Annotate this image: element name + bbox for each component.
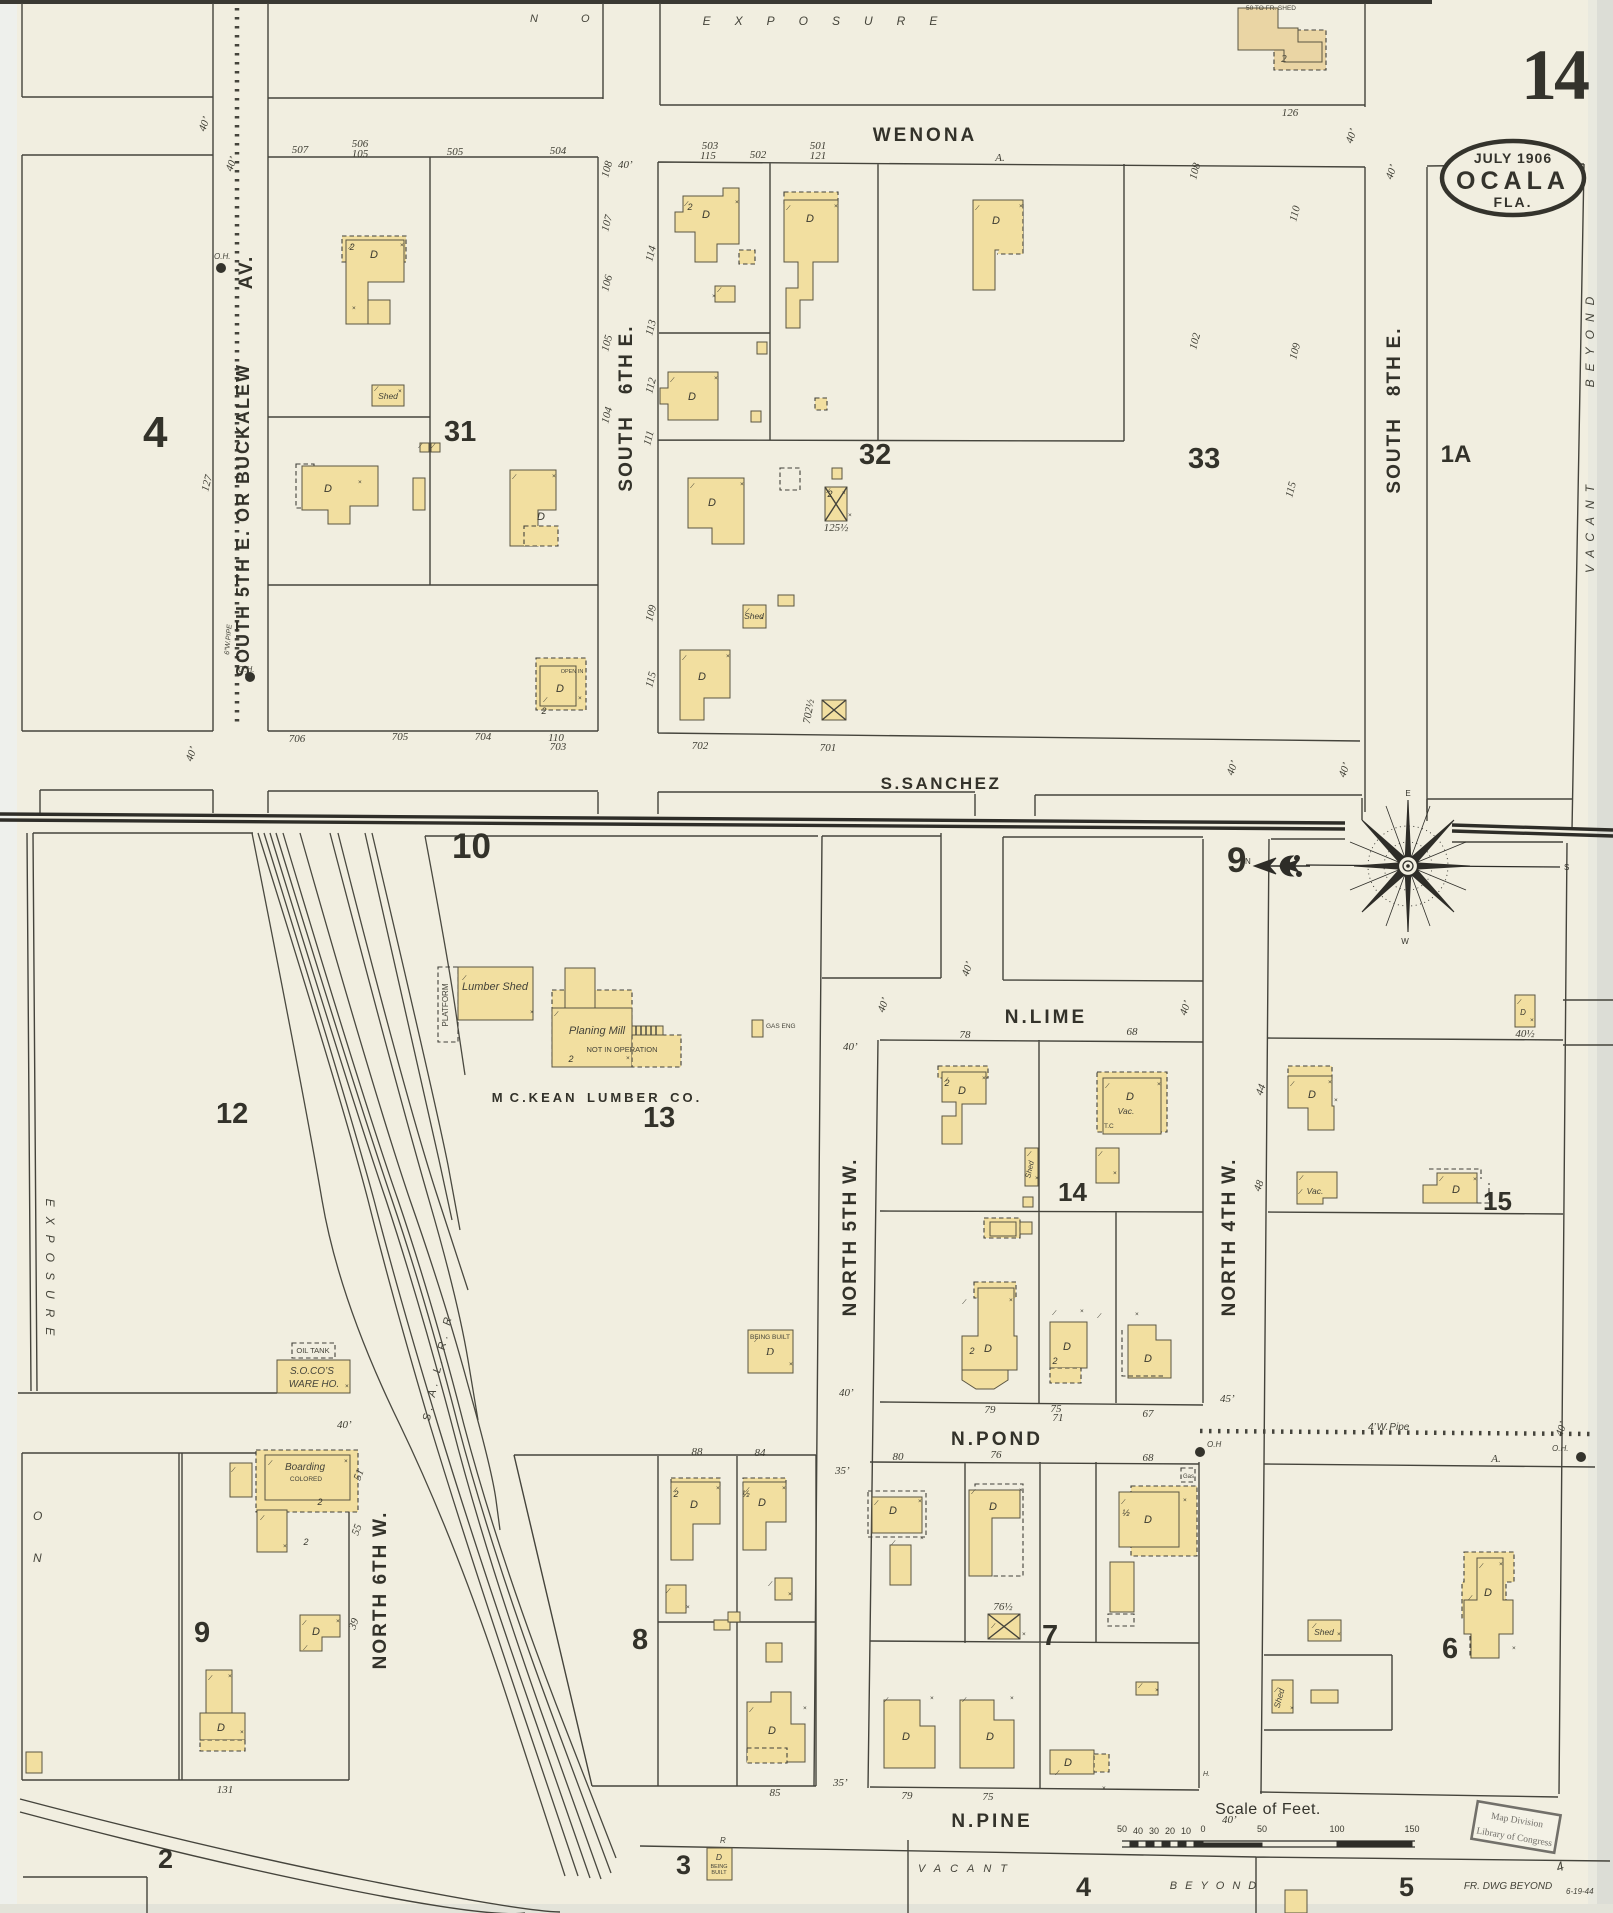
svg-text:D: D xyxy=(989,1501,997,1513)
svg-text:30: 30 xyxy=(1149,1826,1159,1836)
svg-text:×: × xyxy=(788,1591,792,1598)
svg-text:40’: 40’ xyxy=(337,1419,352,1431)
svg-text:O: O xyxy=(581,13,590,25)
svg-text:JULY 1906: JULY 1906 xyxy=(1474,150,1552,166)
svg-text:×: × xyxy=(626,1055,630,1062)
svg-text:12: 12 xyxy=(216,1098,248,1130)
svg-text:E: E xyxy=(1405,789,1410,798)
svg-text:80: 80 xyxy=(893,1451,905,1463)
svg-text:D: D xyxy=(708,497,716,509)
svg-text:×: × xyxy=(336,1618,340,1625)
svg-text:D: D xyxy=(556,683,564,695)
svg-text:½: ½ xyxy=(1122,1508,1130,1518)
svg-text:×: × xyxy=(345,1383,349,1390)
svg-text:×: × xyxy=(1019,1487,1023,1494)
svg-text:3: 3 xyxy=(676,1850,691,1880)
svg-text:×: × xyxy=(352,305,356,312)
svg-text:502: 502 xyxy=(750,149,767,161)
svg-text:D: D xyxy=(1308,1089,1316,1101)
svg-text:71: 71 xyxy=(1053,1412,1064,1424)
svg-text:706: 706 xyxy=(289,733,306,745)
svg-text:×: × xyxy=(760,615,764,622)
svg-text:4: 4 xyxy=(143,408,168,457)
svg-text:N.PINE: N.PINE xyxy=(951,1811,1032,1832)
svg-text:Vac.: Vac. xyxy=(1118,1106,1135,1116)
svg-text:D: D xyxy=(768,1725,776,1737)
svg-text:115: 115 xyxy=(700,150,716,162)
svg-text:S.O.CO’S: S.O.CO’S xyxy=(290,1366,334,1377)
svg-text:2: 2 xyxy=(686,202,692,212)
svg-text:D: D xyxy=(324,483,332,495)
svg-text:126: 126 xyxy=(1282,107,1299,119)
svg-text:31: 31 xyxy=(444,416,476,448)
svg-text:131: 131 xyxy=(217,1784,234,1796)
svg-text:D: D xyxy=(765,1346,774,1358)
svg-text:504: 504 xyxy=(550,145,567,157)
svg-text:NOT IN OPERATION: NOT IN OPERATION xyxy=(587,1045,658,1054)
svg-text:×: × xyxy=(1080,1308,1084,1315)
svg-text:D: D xyxy=(902,1731,910,1743)
svg-text:×: × xyxy=(530,1009,534,1016)
svg-text:75: 75 xyxy=(983,1791,995,1803)
svg-text:M C.KEAN LUMBER CO.: M C.KEAN LUMBER CO. xyxy=(492,1090,702,1105)
svg-text:9: 9 xyxy=(194,1617,210,1649)
svg-text:100: 100 xyxy=(1329,1824,1344,1834)
svg-text:R: R xyxy=(720,1836,726,1845)
svg-text:×: × xyxy=(1135,1311,1139,1318)
svg-text:D: D xyxy=(889,1505,897,1517)
svg-text:14: 14 xyxy=(1521,35,1589,115)
svg-text:×: × xyxy=(552,473,556,480)
svg-text:D: D xyxy=(986,1731,994,1743)
svg-text:Scale of Feet.: Scale of Feet. xyxy=(1215,1801,1321,1818)
svg-text:Gas: Gas xyxy=(1183,1474,1194,1480)
svg-text:×: × xyxy=(714,375,718,382)
svg-text:85: 85 xyxy=(770,1787,782,1799)
svg-text:2: 2 xyxy=(316,1497,322,1507)
svg-text:×: × xyxy=(1512,1645,1516,1652)
svg-text:10: 10 xyxy=(1181,1826,1191,1836)
svg-text:×: × xyxy=(930,1695,934,1702)
svg-text:EXPOSURE: EXPOSURE xyxy=(43,1199,57,1346)
svg-text:×: × xyxy=(398,388,402,395)
svg-text:2: 2 xyxy=(1281,53,1287,65)
svg-text:SOUTH 6TH E.: SOUTH 6TH E. xyxy=(616,324,637,491)
svg-text:D: D xyxy=(698,671,706,683)
svg-text:5: 5 xyxy=(1399,1872,1414,1902)
svg-text:D: D xyxy=(1484,1587,1492,1599)
svg-text:703: 703 xyxy=(550,741,567,753)
svg-text:0: 0 xyxy=(1200,1824,1205,1834)
svg-text:×: × xyxy=(920,1535,924,1542)
svg-text:NORTH 5TH W.: NORTH 5TH W. xyxy=(840,1158,861,1317)
svg-text:×: × xyxy=(1010,1695,1014,1702)
svg-text:EXPOSURE: EXPOSURE xyxy=(703,14,962,28)
svg-text:PLATFORM: PLATFORM xyxy=(441,983,450,1026)
svg-text:6: 6 xyxy=(1442,1633,1458,1665)
svg-text:×: × xyxy=(1183,1497,1187,1504)
svg-text:N: N xyxy=(33,1551,42,1565)
svg-text:O: O xyxy=(33,1509,42,1523)
svg-text:N.POND: N.POND xyxy=(951,1429,1043,1450)
svg-text:Lumber Shed: Lumber Shed xyxy=(462,981,529,993)
svg-text:×: × xyxy=(726,653,730,660)
svg-text:125½: 125½ xyxy=(824,522,849,534)
svg-text:×: × xyxy=(1499,1561,1503,1568)
svg-text:D: D xyxy=(537,511,545,523)
svg-text:OPEN IN: OPEN IN xyxy=(561,669,584,675)
svg-text:H.: H. xyxy=(1203,1771,1210,1778)
svg-text:D: D xyxy=(1144,1353,1152,1365)
svg-text:705: 705 xyxy=(392,731,409,743)
svg-text:76½: 76½ xyxy=(993,1601,1012,1613)
svg-text:84: 84 xyxy=(755,1447,767,1459)
svg-text:40½: 40½ xyxy=(1515,1028,1534,1040)
svg-text:D: D xyxy=(1126,1091,1134,1103)
svg-text:D: D xyxy=(716,1852,722,1862)
svg-text:×: × xyxy=(1022,1631,1026,1638)
svg-text:×: × xyxy=(1157,1081,1161,1088)
svg-text:2: 2 xyxy=(1051,1356,1057,1366)
svg-text:40’: 40’ xyxy=(618,159,633,171)
svg-text:×: × xyxy=(578,695,582,702)
svg-text:10: 10 xyxy=(452,827,491,866)
svg-text:D: D xyxy=(1063,1341,1071,1353)
svg-text:D: D xyxy=(958,1085,966,1097)
svg-text:W: W xyxy=(1401,937,1409,946)
svg-text:Shed: Shed xyxy=(378,391,398,401)
svg-text:35’: 35’ xyxy=(834,1465,850,1477)
svg-text:×: × xyxy=(789,1361,793,1368)
svg-text:SOUTH 5TH E. OR BUCKALEW: SOUTH 5TH E. OR BUCKALEW xyxy=(233,363,253,677)
svg-text:D: D xyxy=(758,1497,766,1509)
svg-text:O.H.: O.H. xyxy=(214,252,230,261)
svg-text:9: 9 xyxy=(1227,841,1246,880)
svg-text:WENONA: WENONA xyxy=(873,125,978,146)
svg-text:×: × xyxy=(1334,1097,1338,1104)
svg-text:×: × xyxy=(240,1729,244,1736)
svg-text:COLORED: COLORED xyxy=(290,1476,322,1483)
svg-text:702: 702 xyxy=(692,740,709,752)
svg-text:Shed: Shed xyxy=(1314,1627,1334,1637)
svg-text:Vac.: Vac. xyxy=(1307,1186,1324,1196)
svg-text:88: 88 xyxy=(692,1446,704,1458)
svg-text:×: × xyxy=(782,1485,786,1492)
svg-text:D: D xyxy=(1520,1008,1526,1017)
svg-text:×: × xyxy=(735,199,739,206)
svg-text:WARE HO.: WARE HO. xyxy=(289,1379,339,1390)
svg-text:14: 14 xyxy=(1058,1177,1087,1207)
svg-text:S.SANCHEZ: S.SANCHEZ xyxy=(881,774,1002,793)
svg-text:40: 40 xyxy=(1133,1826,1143,1836)
svg-text:D: D xyxy=(1064,1757,1072,1769)
svg-text:BUILT: BUILT xyxy=(711,1870,727,1876)
svg-text:OIL TANK: OIL TANK xyxy=(296,1346,329,1355)
svg-text:Boarding: Boarding xyxy=(285,1462,325,1473)
svg-text:150: 150 xyxy=(1404,1824,1419,1834)
svg-text:N: N xyxy=(1245,857,1251,866)
svg-text:S: S xyxy=(1564,863,1569,872)
svg-text:13: 13 xyxy=(643,1102,675,1134)
svg-text:15: 15 xyxy=(1483,1186,1512,1216)
svg-text:68: 68 xyxy=(1143,1452,1155,1464)
svg-text:×: × xyxy=(1328,1079,1332,1086)
svg-text:×: × xyxy=(1113,1170,1117,1177)
svg-text:D: D xyxy=(370,249,378,261)
svg-text:×: × xyxy=(1035,1175,1039,1182)
svg-text:×: × xyxy=(1102,1785,1106,1792)
svg-text:T.C: T.C xyxy=(1104,1123,1114,1130)
svg-text:×: × xyxy=(400,242,404,249)
svg-text:A.: A. xyxy=(994,152,1004,164)
svg-text:505: 505 xyxy=(447,146,464,158)
svg-text:D: D xyxy=(992,215,1000,227)
svg-text:20: 20 xyxy=(1165,1826,1175,1836)
svg-text:×: × xyxy=(228,1673,232,1680)
svg-text:VACANT: VACANT xyxy=(1583,477,1597,573)
svg-text:O.H: O.H xyxy=(1207,1440,1221,1449)
svg-text:×: × xyxy=(918,1498,922,1505)
svg-text:D: D xyxy=(690,1499,698,1511)
svg-text:40’: 40’ xyxy=(839,1387,854,1399)
svg-text:×: × xyxy=(1530,1017,1534,1024)
svg-text:2: 2 xyxy=(302,1537,308,1547)
svg-text:×: × xyxy=(740,481,744,488)
svg-text:×: × xyxy=(982,1075,986,1082)
svg-text:2: 2 xyxy=(567,1054,573,1064)
svg-text:×: × xyxy=(1337,1631,1341,1638)
svg-text:×: × xyxy=(283,1543,287,1550)
svg-text:×: × xyxy=(1009,1297,1013,1304)
svg-text:N.LIME: N.LIME xyxy=(1005,1007,1087,1028)
svg-text:D: D xyxy=(1144,1514,1152,1526)
svg-text:78: 78 xyxy=(960,1029,972,1041)
svg-text:105: 105 xyxy=(352,148,369,160)
svg-text:×: × xyxy=(712,293,716,300)
svg-text:45’: 45’ xyxy=(1220,1393,1235,1405)
svg-text:BEYOND: BEYOND xyxy=(1583,289,1597,388)
svg-text:GAS ENG: GAS ENG xyxy=(766,1023,796,1030)
svg-text:76: 76 xyxy=(991,1449,1003,1461)
svg-text:VACANT: VACANT xyxy=(918,1863,1016,1875)
svg-text:×: × xyxy=(716,1485,720,1492)
svg-text:4: 4 xyxy=(1076,1872,1091,1902)
svg-text:2: 2 xyxy=(968,1346,974,1356)
svg-text:D: D xyxy=(806,213,814,225)
svg-text:×: × xyxy=(848,512,852,519)
svg-text:2: 2 xyxy=(540,706,546,716)
svg-text:FLA.: FLA. xyxy=(1493,194,1532,210)
svg-text:D: D xyxy=(702,209,710,221)
svg-text:704: 704 xyxy=(475,731,492,743)
svg-text:FR. DWG BEYOND: FR. DWG BEYOND xyxy=(1464,1881,1552,1892)
svg-text:8: 8 xyxy=(632,1624,648,1656)
svg-text:N: N xyxy=(530,13,538,25)
svg-text:4’ W. Pipe: 4’ W. Pipe xyxy=(1368,1422,1410,1433)
svg-text:6-19-44: 6-19-44 xyxy=(1566,1887,1594,1896)
svg-text:121: 121 xyxy=(810,150,827,162)
svg-text:AV.: AV. xyxy=(236,255,257,290)
svg-text:A.: A. xyxy=(1490,1453,1500,1465)
svg-text:7: 7 xyxy=(1042,1620,1058,1652)
svg-text:40’: 40’ xyxy=(843,1041,858,1053)
svg-text:D: D xyxy=(312,1626,320,1638)
svg-text:×: × xyxy=(803,1705,807,1712)
svg-text:NORTH 4TH W.: NORTH 4TH W. xyxy=(1219,1158,1240,1317)
svg-text:35’: 35’ xyxy=(832,1777,848,1789)
svg-text:1A: 1A xyxy=(1441,441,1472,468)
svg-text:32: 32 xyxy=(859,439,891,471)
svg-text:D: D xyxy=(1452,1184,1460,1196)
svg-text:OCALA: OCALA xyxy=(1456,167,1570,195)
svg-text:507: 507 xyxy=(292,144,309,156)
svg-text:O.H.: O.H. xyxy=(1552,1444,1568,1453)
svg-text:68: 68 xyxy=(1127,1026,1139,1038)
svg-text:D: D xyxy=(984,1343,992,1355)
svg-text:×: × xyxy=(1019,203,1023,210)
svg-text:79: 79 xyxy=(985,1404,997,1416)
svg-text:67: 67 xyxy=(1143,1408,1155,1420)
svg-text:×: × xyxy=(1473,1176,1477,1183)
svg-text:D: D xyxy=(688,391,696,403)
svg-text:×: × xyxy=(344,1458,348,1465)
svg-text:×: × xyxy=(842,490,846,497)
svg-text:50 TO FR. SHED: 50 TO FR. SHED xyxy=(1246,5,1296,12)
svg-text:50: 50 xyxy=(1117,1824,1127,1834)
svg-text:SOUTH 8TH E.: SOUTH 8TH E. xyxy=(1384,326,1405,493)
svg-text:×: × xyxy=(1155,1687,1159,1694)
svg-text:D: D xyxy=(217,1722,225,1734)
svg-text:NORTH 6TH W.: NORTH 6TH W. xyxy=(370,1511,391,1670)
svg-text:×: × xyxy=(358,479,362,486)
svg-text:×: × xyxy=(834,203,838,210)
svg-text:×: × xyxy=(1290,1705,1294,1712)
svg-text:Planing Mill: Planing Mill xyxy=(569,1025,626,1037)
svg-text:BEYOND: BEYOND xyxy=(1170,1880,1264,1892)
svg-text:50: 50 xyxy=(1257,1824,1267,1834)
svg-text:×: × xyxy=(686,1604,690,1611)
svg-text:701: 701 xyxy=(820,742,837,754)
svg-text:79: 79 xyxy=(902,1790,914,1802)
svg-text:33: 33 xyxy=(1188,443,1220,475)
svg-text:2: 2 xyxy=(158,1844,173,1874)
